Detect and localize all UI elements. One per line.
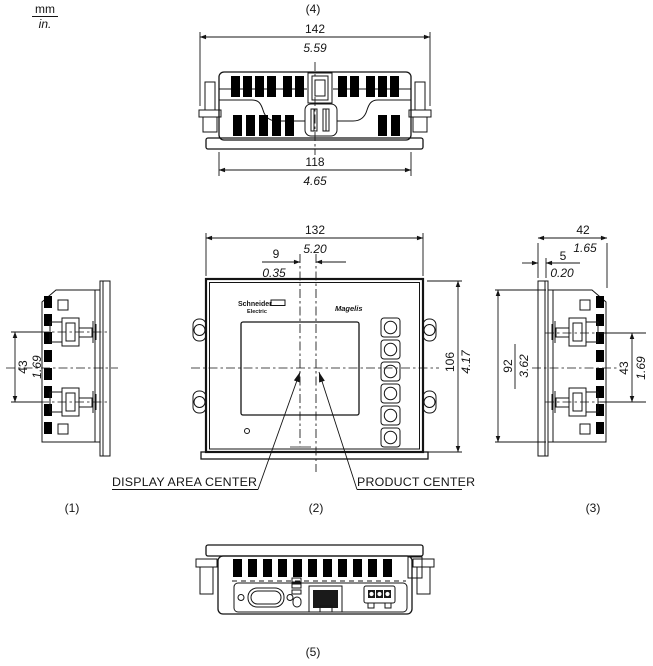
dim-43R-mm: 43 <box>617 361 631 375</box>
ethernet-rj45-port <box>309 586 342 612</box>
dim-5-inch: 0.20 <box>550 266 574 280</box>
units-inch: in. <box>39 17 52 31</box>
mounting-clamp-top-right <box>409 82 431 132</box>
dim-118-inch: 4.65 <box>303 174 327 188</box>
dim-right-clamp-spacing: 43 1.69 <box>600 333 648 402</box>
dip-switches <box>292 578 301 607</box>
dim-42-mm: 42 <box>576 223 590 237</box>
label-display-area-center: DISPLAY AREA CENTER <box>112 475 257 489</box>
vent-slots-right <box>596 296 604 434</box>
view-left: 43 1.69 (1) <box>6 281 118 515</box>
dim-43L-inch: 1.69 <box>30 355 44 379</box>
view-top: (4) 142 5.59 <box>199 2 431 188</box>
dim-92-mm: 92 <box>501 359 515 373</box>
left-view-device <box>42 281 110 456</box>
units-legend: mm in. <box>32 2 58 31</box>
left-body-outline <box>42 290 100 442</box>
dim-106-mm: 106 <box>443 352 457 372</box>
dim-left-clamp-spacing: 43 1.69 <box>11 332 44 402</box>
bottom-bezel-flange <box>206 545 423 556</box>
mounting-clamp-top-left <box>199 82 221 132</box>
view-bottom-tag: (5) <box>306 645 321 659</box>
dim-9-mm: 9 <box>273 247 280 261</box>
right-bezel-plate <box>538 281 548 456</box>
dim-front-bezel-height: 106 4.17 <box>427 281 473 452</box>
bottom-view-device <box>196 545 434 614</box>
vent-slots-bottom <box>233 559 392 577</box>
mounting-clamp-right-upper <box>552 318 598 346</box>
usb-cable-clamp <box>305 104 337 136</box>
units-mm: mm <box>35 2 55 16</box>
dim-142-mm: 142 <box>305 22 325 36</box>
mounting-clamp-bottom-right <box>413 559 434 594</box>
dim-front-bezel-width: 132 5.20 <box>206 223 423 276</box>
dim-142-inch: 5.59 <box>303 41 327 55</box>
dim-43R-inch: 1.69 <box>634 356 648 380</box>
mounting-tab-left-lower <box>193 391 206 413</box>
right-view-device <box>538 281 606 456</box>
right-body-outline <box>548 290 606 442</box>
brand-name-line1: Schneider <box>238 301 272 308</box>
dim-132-inch: 5.20 <box>303 242 327 256</box>
view-right-tag: (3) <box>586 501 601 515</box>
brand-name-line2: Electric <box>247 309 267 315</box>
label-product-center: PRODUCT CENTER <box>357 475 475 489</box>
dim-118-mm: 118 <box>305 155 324 169</box>
mounting-tab-left-upper <box>193 319 206 341</box>
dim-43L-mm: 43 <box>16 360 30 374</box>
front-view-device <box>193 279 436 459</box>
dim-132-mm: 132 <box>305 223 325 237</box>
view-top-tag: (4) <box>306 2 321 16</box>
dim-106-inch: 4.17 <box>459 349 473 374</box>
usb-port <box>308 73 332 103</box>
mounting-clamp-bottom-left <box>196 559 217 594</box>
power-connector <box>364 586 395 608</box>
dim-top-body-width: 118 4.65 <box>219 152 411 188</box>
mounting-tab-right-lower <box>423 391 436 413</box>
view-right: 42 1.65 5 0.20 <box>495 223 648 515</box>
view-front-tag: (2) <box>309 501 324 515</box>
left-bezel-plate <box>100 281 110 456</box>
drawing-svg: mm in. (4) 142 5.59 <box>0 0 653 661</box>
dim-right-bezel-depth: 5 0.20 <box>522 249 580 280</box>
product-logo: Magelis <box>335 304 363 313</box>
dimension-drawing: mm in. (4) 142 5.59 <box>0 0 653 661</box>
dim-92-inch: 3.62 <box>517 354 531 378</box>
view-bottom: (5) <box>196 545 434 659</box>
dim-42-inch: 1.65 <box>573 241 597 255</box>
mounting-tab-right-upper <box>423 319 436 341</box>
view-front: 132 5.20 9 0.35 <box>112 223 475 515</box>
dim-9-inch: 0.35 <box>262 266 286 280</box>
view-left-tag: (1) <box>65 501 80 515</box>
vent-slots-left <box>44 296 52 434</box>
dim-5-mm: 5 <box>560 249 567 263</box>
serial-db9-connector <box>238 588 293 607</box>
